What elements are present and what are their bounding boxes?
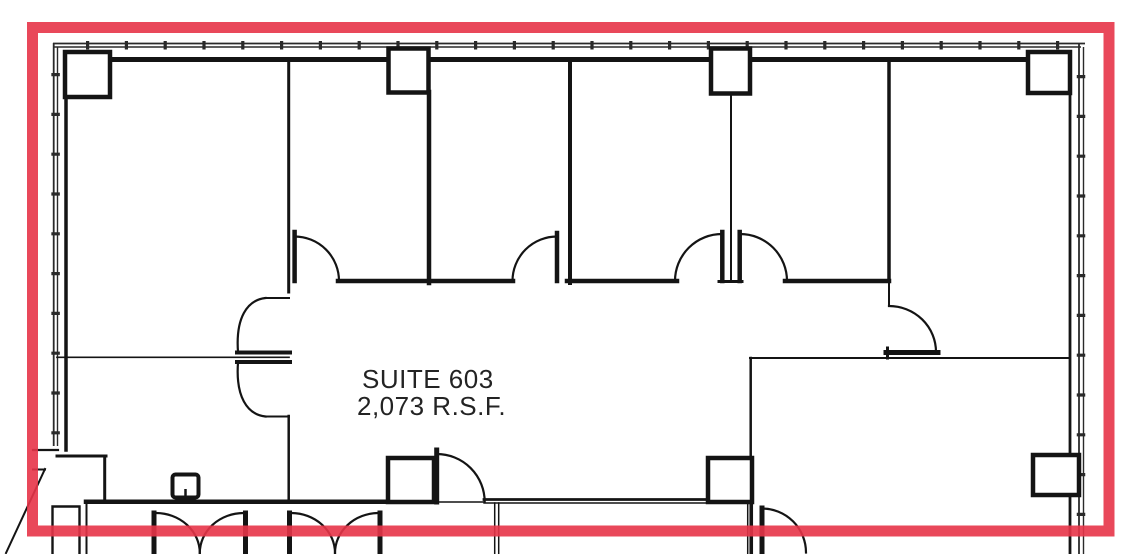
column-ne [1028, 52, 1070, 93]
suite-label: SUITE 603 [362, 364, 494, 394]
door-leaf [6, 469, 45, 553]
column-top-3 [711, 49, 750, 94]
door-swing-arc [740, 234, 787, 281]
column-south-1 [388, 458, 434, 502]
door-suite-entry [435, 450, 485, 502]
door-swing-arc [437, 454, 485, 502]
door-angled-sw [6, 469, 45, 553]
door-office1 [295, 232, 339, 281]
door-office2 [513, 233, 558, 281]
floor-plan-page: SUITE 603 2,073 R.S.F. [0, 0, 1141, 554]
door-swing-arc [513, 237, 558, 282]
door-swing-arc-top [238, 298, 266, 352]
column-south-2 [708, 458, 752, 502]
door-swing-arc [675, 234, 722, 281]
column-top-2 [389, 49, 429, 93]
window-wall-west [54, 43, 58, 446]
window-wall-top [53, 44, 1085, 48]
door-swing-arc-bottom [238, 363, 266, 417]
door-office3 [675, 232, 722, 281]
door-swing-arc [889, 306, 936, 352]
column-east [1033, 455, 1079, 495]
area-label: 2,073 R.S.F. [357, 391, 506, 421]
wall-fixture [173, 475, 199, 498]
door-office4 [740, 232, 787, 281]
column-nw [65, 52, 110, 97]
door-double-acting-west [237, 298, 290, 501]
door-se-room [886, 306, 938, 358]
floor-plan: SUITE 603 2,073 R.S.F. [0, 0, 1141, 554]
door-swing-arc [295, 237, 339, 282]
labels: SUITE 603 2,073 R.S.F. [357, 364, 506, 421]
